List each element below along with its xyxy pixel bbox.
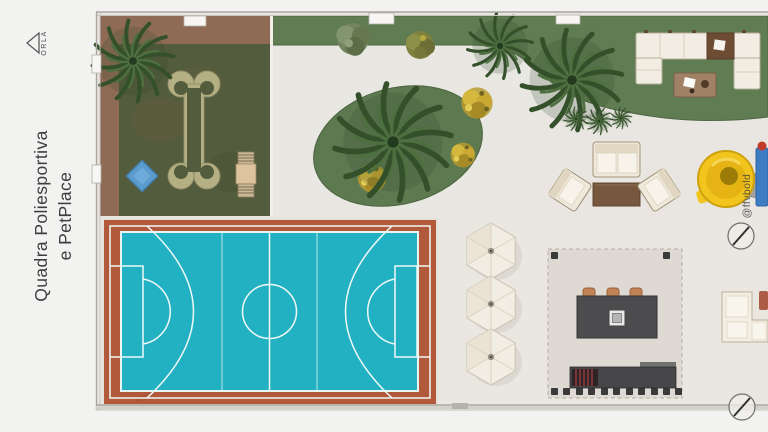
pet-bench: [236, 152, 256, 197]
coffee-table: [674, 73, 716, 97]
section-marker-icon: [729, 394, 755, 420]
floor-plan-screenshot: ORLA Quadra Poliesportiva e PetPlace @ff…: [0, 0, 768, 432]
lounge-table: [593, 183, 640, 206]
accent-cushion: [759, 291, 768, 310]
sports-court: [103, 219, 437, 405]
page-title-line2: e PetPlace: [53, 51, 77, 381]
umbrella-row: [467, 223, 522, 386]
site-plan: [0, 0, 768, 432]
path-divider: [270, 16, 273, 216]
wall-bench: [556, 15, 580, 24]
bar-counter: [577, 288, 657, 338]
wall-post: [92, 55, 101, 73]
page-title: Quadra Poliesportiva e PetPlace: [29, 51, 77, 381]
gourmet-deck: [548, 249, 682, 398]
wall-bench: [369, 13, 394, 24]
page-title-line1: Quadra Poliesportiva: [29, 51, 53, 381]
slide-pole: [756, 148, 768, 206]
wall-post: [92, 165, 101, 183]
wall-bench: [184, 16, 206, 26]
watermark-handle: @ffvbold: [741, 161, 753, 231]
